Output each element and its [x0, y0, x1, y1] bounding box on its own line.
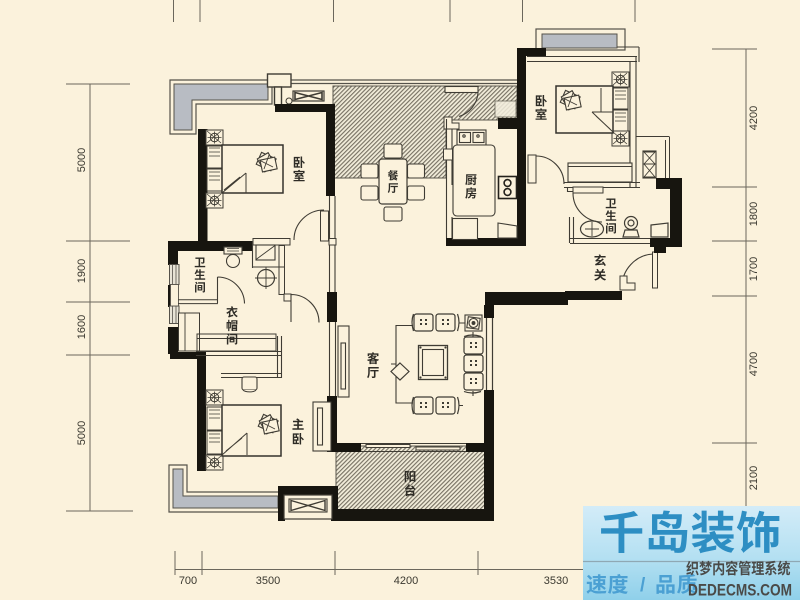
- svg-text:700: 700: [179, 575, 197, 587]
- svg-text:/: /: [640, 575, 646, 596]
- svg-text:1900: 1900: [76, 259, 88, 283]
- svg-text:DEDECMS.COM: DEDECMS.COM: [688, 582, 792, 600]
- svg-text:5000: 5000: [76, 148, 88, 172]
- svg-text:4700: 4700: [748, 352, 760, 376]
- svg-text:1600: 1600: [76, 315, 88, 339]
- svg-text:3500: 3500: [256, 575, 280, 587]
- svg-text:3530: 3530: [544, 575, 568, 587]
- svg-text:4200: 4200: [394, 575, 418, 587]
- svg-text:5000: 5000: [76, 421, 88, 445]
- svg-text:1700: 1700: [748, 257, 760, 281]
- svg-text:2100: 2100: [748, 466, 760, 490]
- svg-text:1800: 1800: [748, 202, 760, 226]
- svg-text:4200: 4200: [748, 106, 760, 130]
